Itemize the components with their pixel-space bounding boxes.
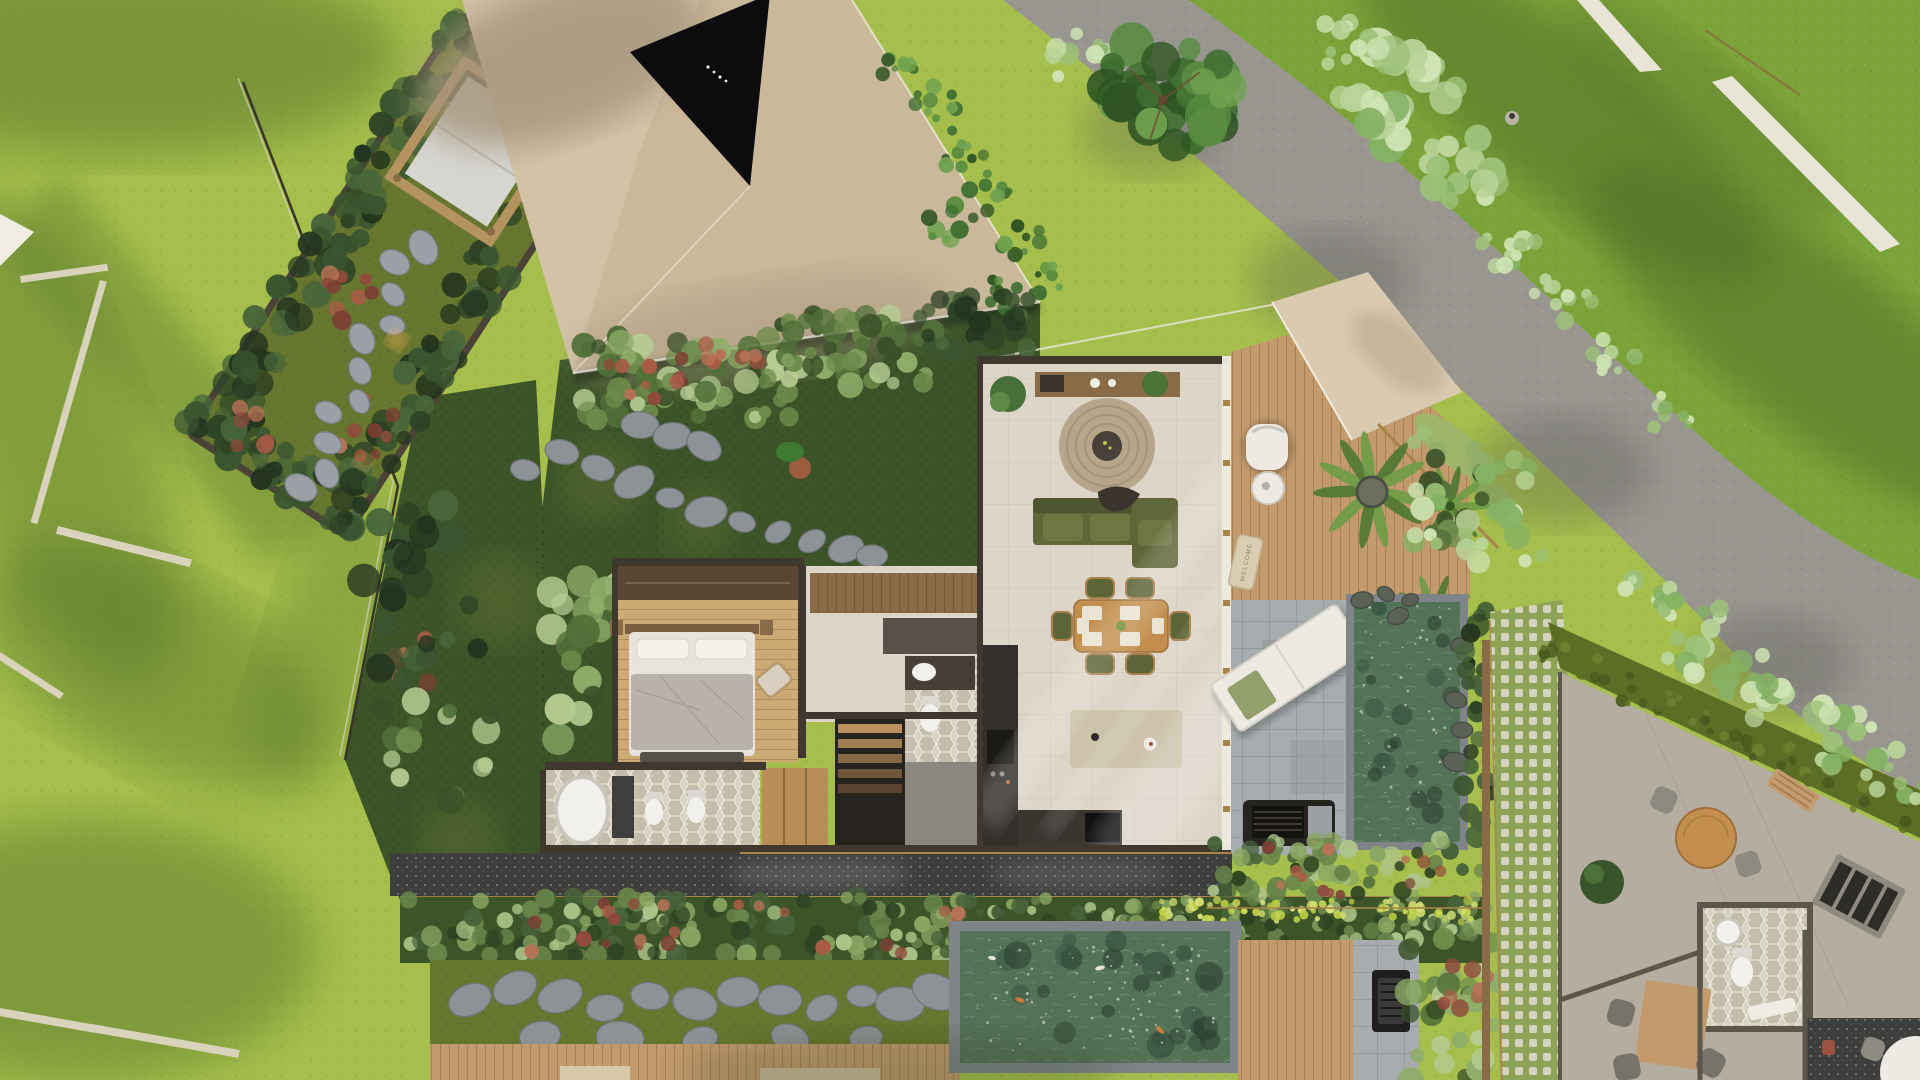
bath-mat (612, 776, 634, 838)
bed (625, 624, 759, 763)
laundry-counter (883, 618, 980, 654)
placemat (1077, 618, 1089, 634)
coffee-table (1092, 431, 1122, 461)
pillow (695, 639, 747, 659)
bathtub (556, 777, 608, 843)
neighbor-toilet (1731, 948, 1753, 987)
paver-dark (1290, 740, 1344, 794)
placemat (1152, 618, 1164, 634)
potted-plant (1580, 860, 1624, 904)
deck-mat (560, 1066, 630, 1080)
placemat (1082, 606, 1102, 620)
site-plan-rendering: WELCOME (0, 0, 1920, 1080)
sink-basin (912, 663, 936, 681)
aerial-villa-site-plan: WELCOME (0, 0, 1920, 1080)
vase (1090, 378, 1100, 388)
br-deck-planks (1238, 940, 1353, 1080)
round-rug (1059, 398, 1155, 494)
round-table (1676, 808, 1736, 868)
neighbor-bathroom (1700, 905, 1810, 1029)
plant-pot (1357, 477, 1387, 507)
round-basin (1715, 919, 1741, 945)
dining-chair (1052, 612, 1072, 640)
deck-armchair (1242, 420, 1294, 476)
corner-plant-leaf (990, 392, 1010, 412)
flowers (1108, 446, 1111, 449)
court-deck-planks (810, 573, 983, 613)
console-plant (1142, 371, 1168, 397)
deck-side-table (1252, 472, 1284, 504)
walkway-light (990, 858, 1170, 890)
staircase (835, 718, 905, 848)
food (1149, 742, 1153, 746)
bed-bench (640, 752, 744, 763)
pillow (637, 639, 689, 659)
toilet (645, 792, 663, 825)
red-stool (1822, 1040, 1835, 1055)
pepper-grinder (1091, 733, 1099, 741)
closet (762, 768, 828, 846)
drive-edge-board (1482, 640, 1490, 1080)
vase (1108, 379, 1116, 387)
dining-chair (1086, 578, 1114, 598)
walkway-light (730, 858, 910, 890)
plunge-pool (1346, 594, 1468, 850)
bidet (687, 790, 705, 823)
powder-cabinet (905, 762, 977, 846)
dining-chair (1126, 654, 1154, 674)
plant-leaf (776, 442, 804, 462)
flowers (1103, 441, 1107, 445)
potted-plant-leaf (1584, 864, 1604, 884)
console-object (1040, 375, 1064, 392)
bollard-top (1509, 113, 1515, 119)
nightstand (760, 620, 773, 635)
